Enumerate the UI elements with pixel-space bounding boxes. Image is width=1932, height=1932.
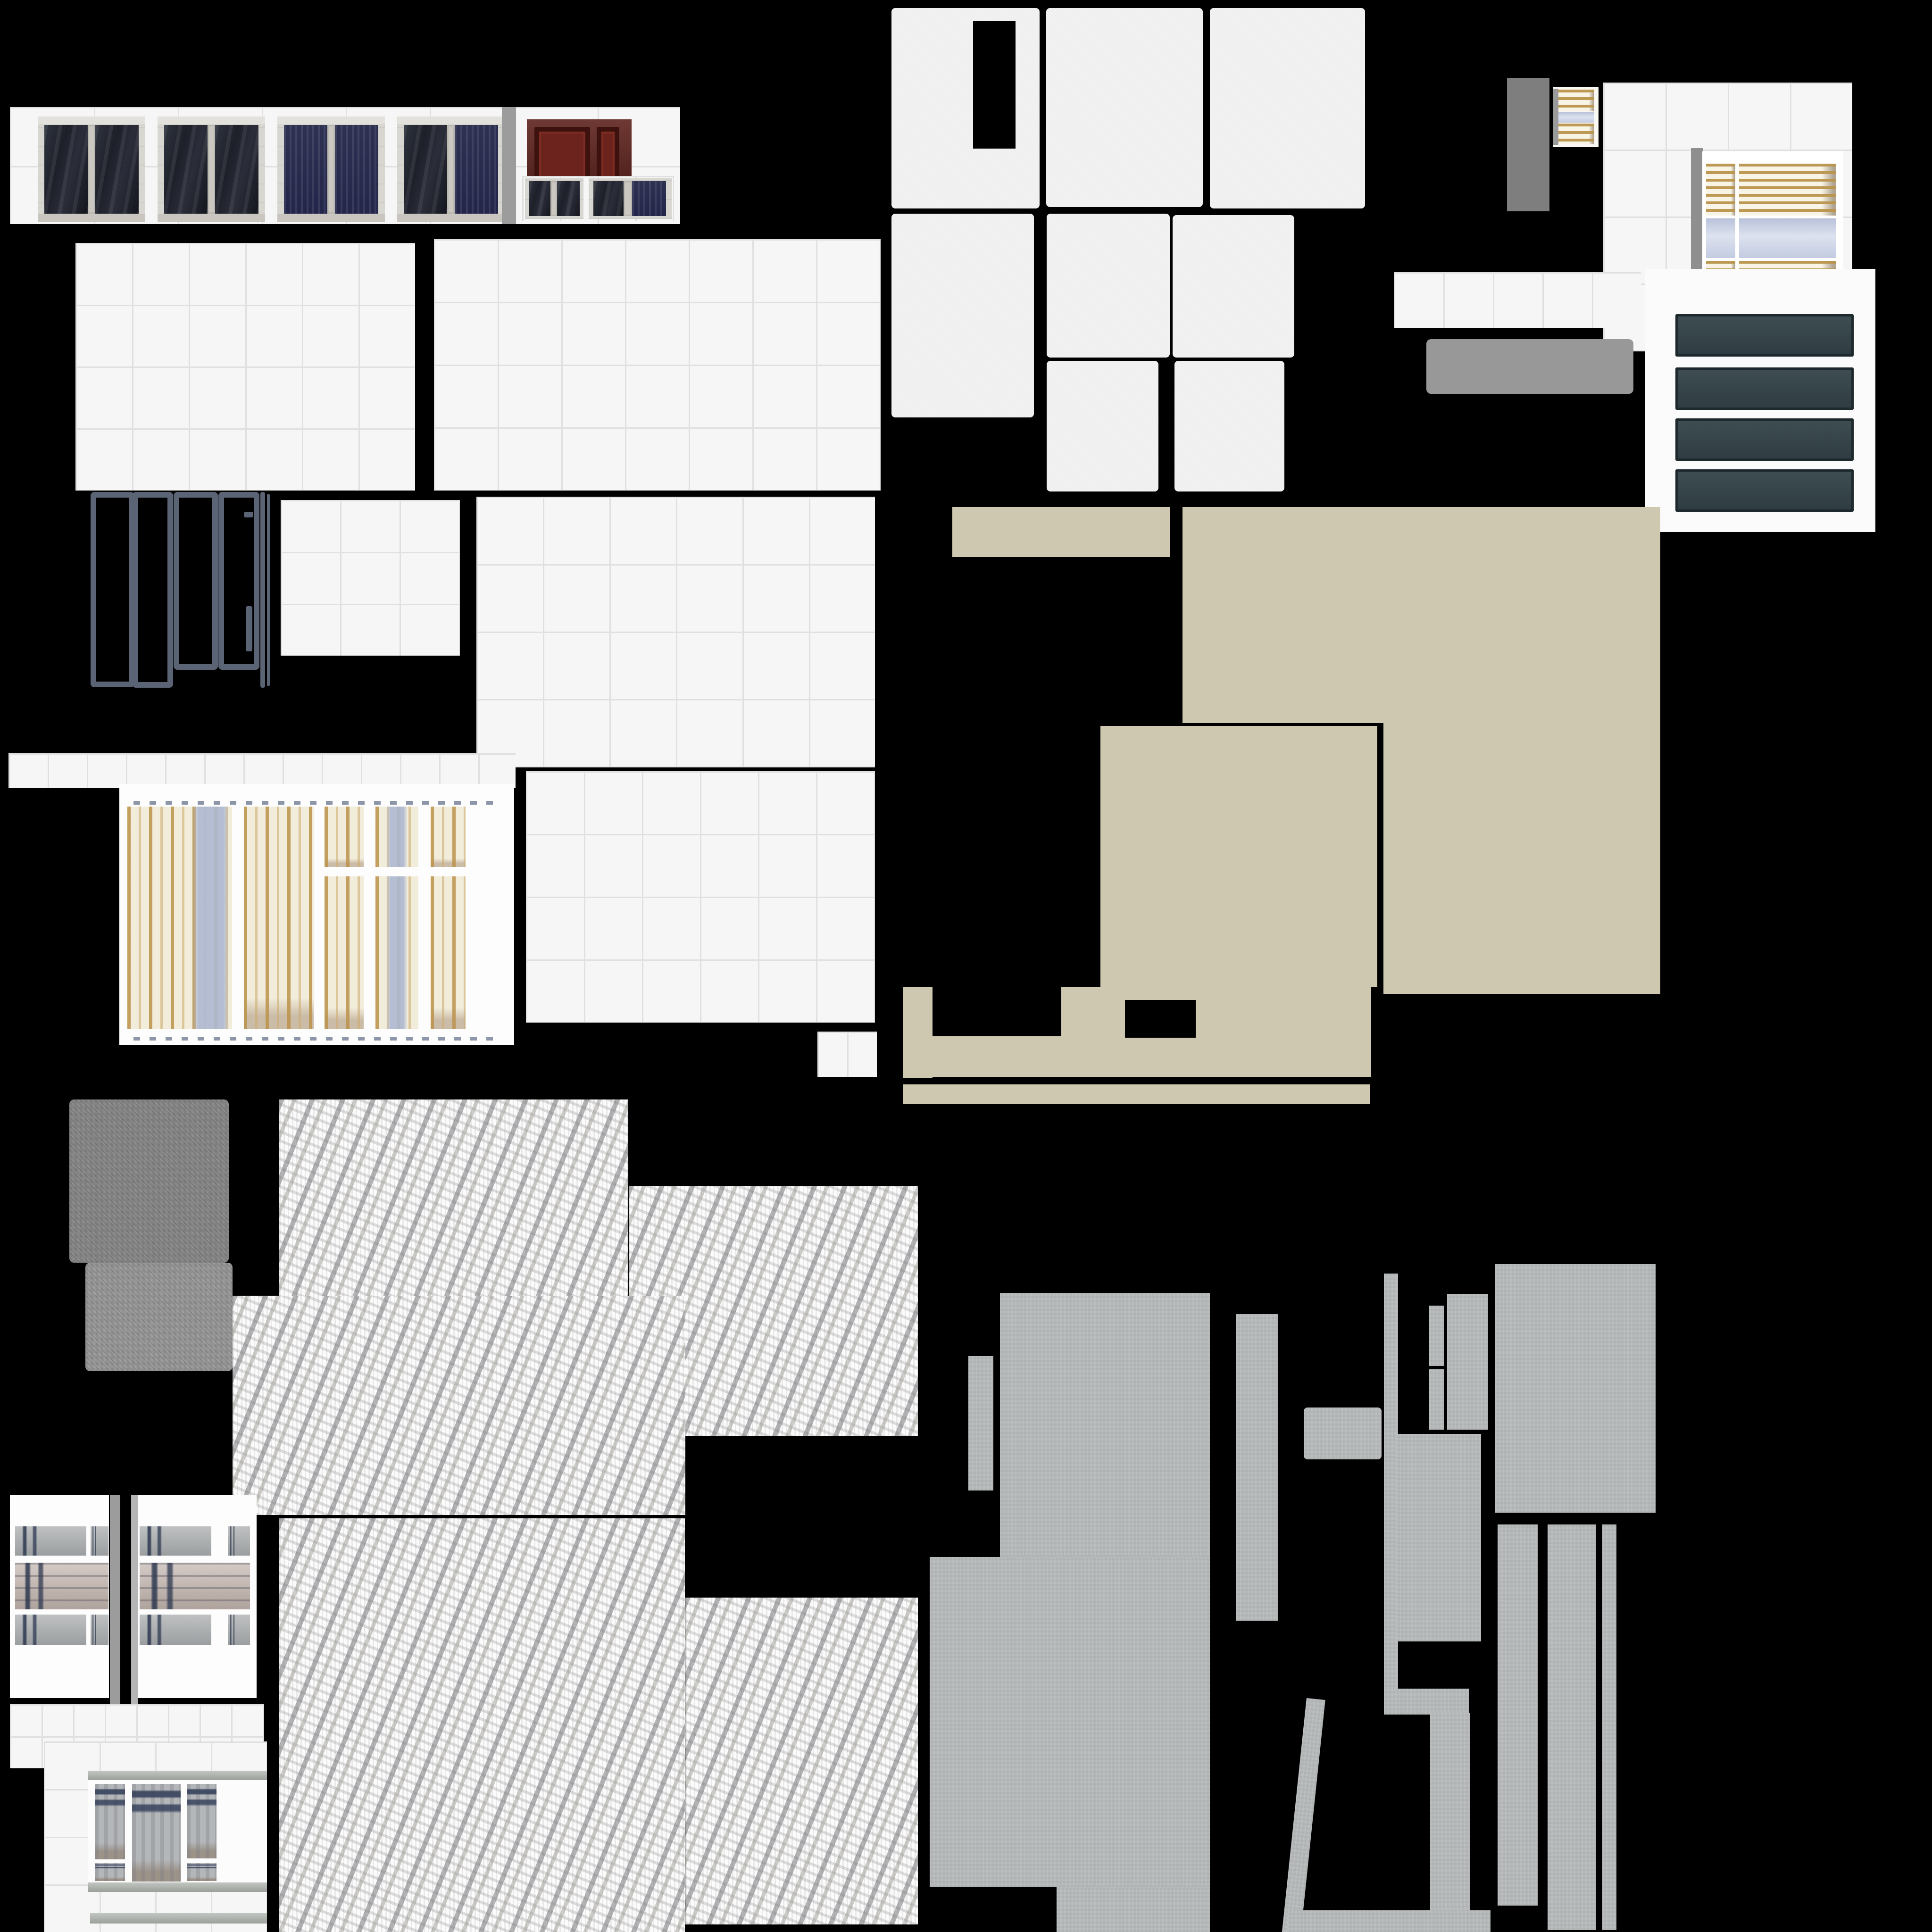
tr-gray-bar bbox=[1507, 78, 1549, 211]
tile-strip-long bbox=[8, 753, 516, 788]
glass-row3-side bbox=[91, 1615, 108, 1645]
window-lintel bbox=[38, 117, 145, 124]
br-slab-h bbox=[1396, 1434, 1481, 1641]
window-mullion bbox=[447, 125, 455, 214]
window-pane-left bbox=[529, 181, 550, 216]
mini-blinds-bottom bbox=[1558, 124, 1594, 144]
blinds-left-top bbox=[1706, 164, 1735, 216]
blinds-right-mid bbox=[1739, 218, 1836, 258]
window-unit-2 bbox=[158, 117, 265, 222]
tile-region-c bbox=[281, 500, 460, 656]
tile-region-d bbox=[476, 497, 875, 767]
window-pane-right bbox=[557, 181, 580, 216]
window-pane-left bbox=[44, 125, 88, 214]
tr-plank-strip bbox=[1394, 272, 1641, 328]
curtain-col2-bottom bbox=[375, 876, 418, 1029]
window-pane-right bbox=[455, 125, 498, 214]
teal-slat-2 bbox=[1675, 367, 1854, 410]
curtain-window-block bbox=[119, 784, 514, 1045]
mini-blinds-edge bbox=[1553, 89, 1558, 145]
mini-blinds-band bbox=[1558, 112, 1594, 123]
curtain-pane-wide-1 bbox=[127, 807, 232, 1029]
window-mullion bbox=[208, 125, 215, 214]
window-sill bbox=[38, 214, 145, 222]
curtain-col2-top bbox=[375, 807, 418, 867]
br-column-k bbox=[1602, 1524, 1616, 1930]
bl-bar-lower bbox=[90, 1913, 267, 1924]
curtain-col3-bottom bbox=[431, 876, 466, 1029]
br-strip-c bbox=[1236, 1314, 1278, 1621]
window-lintel bbox=[397, 117, 505, 124]
br-rect-g bbox=[1304, 1407, 1382, 1459]
br-vbar bbox=[968, 1356, 993, 1491]
window-sill bbox=[158, 214, 265, 222]
tan-thin-strip bbox=[903, 1084, 1370, 1104]
tile-region-e bbox=[526, 771, 875, 1023]
door-frame-outline-4 bbox=[218, 492, 259, 670]
white-box-1 bbox=[891, 8, 1040, 208]
glass-row2-wide bbox=[15, 1563, 108, 1609]
bl-post-2 bbox=[131, 1495, 138, 1704]
tr-mini-blinds bbox=[1553, 87, 1599, 147]
br-slab-tongue bbox=[1057, 1887, 1210, 1932]
br-slanted-strip bbox=[1281, 1698, 1325, 1932]
window-mullion bbox=[550, 181, 557, 216]
curtain-pane-3-low bbox=[187, 1863, 217, 1881]
window-sill bbox=[397, 214, 505, 222]
uv-slot bbox=[973, 21, 1016, 149]
frame-thin-bar-1 bbox=[260, 492, 265, 688]
window-sill bbox=[277, 214, 385, 222]
glass-row3-main bbox=[140, 1615, 211, 1645]
texture-atlas-canvas bbox=[0, 0, 1932, 1932]
bl-sill-bottom bbox=[88, 1882, 267, 1892]
white-box-4 bbox=[891, 214, 1034, 417]
tan-bar bbox=[952, 507, 1170, 557]
glass-row1-main bbox=[15, 1526, 86, 1556]
frame-knob bbox=[244, 512, 253, 517]
curtain-rail-bottom bbox=[133, 1037, 497, 1041]
blinds-left-mid bbox=[1706, 218, 1735, 258]
window-mullion bbox=[327, 125, 335, 214]
br-strip-under-h bbox=[1430, 1713, 1470, 1916]
pattern-piece-3 bbox=[233, 1296, 685, 1515]
tr-gray-rect bbox=[1426, 339, 1633, 394]
bl-post-1 bbox=[110, 1495, 120, 1704]
white-box-6 bbox=[1173, 215, 1294, 358]
bl-window-unit-left bbox=[10, 1495, 109, 1698]
curtain-pane-1 bbox=[95, 1784, 125, 1859]
white-box-8 bbox=[1174, 361, 1284, 491]
small-window-pair-1 bbox=[525, 178, 583, 219]
stone-texture-light bbox=[85, 1263, 233, 1371]
curtain-col1-top bbox=[325, 807, 364, 867]
window-pane-right bbox=[95, 125, 139, 214]
tan-slab-mid-left bbox=[1100, 726, 1377, 987]
tan-slab-mid-right bbox=[1383, 723, 1660, 994]
br-bar-f bbox=[1447, 1294, 1488, 1430]
glass-row1-main bbox=[140, 1526, 211, 1556]
br-bottom-bar-thin bbox=[1325, 1928, 1467, 1932]
door-frame-outline-1 bbox=[91, 492, 134, 687]
white-box-7 bbox=[1047, 361, 1158, 491]
tile-region-a bbox=[75, 243, 415, 491]
mini-blinds-top bbox=[1558, 90, 1594, 111]
glass-row3-main bbox=[15, 1615, 86, 1645]
br-slab-l bbox=[1495, 1264, 1656, 1513]
small-window-pair-2 bbox=[589, 178, 672, 219]
divider-bar bbox=[502, 107, 516, 224]
tan-bracket-hole bbox=[1125, 1000, 1196, 1038]
tan-slab-large bbox=[1183, 507, 1660, 723]
stone-texture-dark bbox=[69, 1099, 229, 1263]
br-lbar-foot bbox=[1384, 1689, 1469, 1715]
curtain-rail-top bbox=[133, 801, 497, 805]
window-pane-right bbox=[215, 125, 258, 214]
pattern-piece-5 bbox=[685, 1598, 918, 1924]
curtain-pane-wide-2 bbox=[244, 807, 314, 1029]
pattern-piece-1 bbox=[279, 1099, 628, 1298]
window-pane-left bbox=[593, 181, 624, 216]
window-pane-right bbox=[335, 125, 378, 214]
bl-sill-top bbox=[88, 1771, 267, 1780]
glass-row2-wide bbox=[140, 1563, 250, 1609]
bl-small-window bbox=[88, 1780, 267, 1882]
tan-bracket-right bbox=[1061, 987, 1371, 1077]
white-box-2 bbox=[1046, 8, 1203, 207]
window-unit-4 bbox=[397, 117, 505, 222]
br-small-pair-1 bbox=[1429, 1306, 1444, 1366]
window-mullion bbox=[88, 125, 95, 214]
window-pane-right bbox=[632, 181, 666, 216]
curtain-col1-bottom bbox=[325, 876, 364, 1029]
curtain-col3-top bbox=[431, 807, 466, 867]
br-small-pair-2 bbox=[1429, 1369, 1444, 1430]
window-mullion bbox=[624, 181, 632, 216]
white-box-3 bbox=[1210, 8, 1365, 208]
door-frame-outline-3 bbox=[174, 492, 218, 670]
teal-slat-1 bbox=[1675, 314, 1854, 357]
curtain-pane-2 bbox=[132, 1784, 181, 1882]
window-pane-left bbox=[404, 125, 447, 214]
window-lintel bbox=[158, 117, 265, 124]
bl-window-unit-right bbox=[138, 1495, 257, 1698]
glass-row1-side bbox=[91, 1526, 108, 1556]
white-box-5 bbox=[1047, 214, 1170, 358]
glass-row1-side bbox=[228, 1526, 250, 1556]
tile-small-square bbox=[817, 1032, 877, 1077]
window-unit-1 bbox=[38, 117, 145, 222]
door-frame-outline-2 bbox=[132, 492, 173, 688]
teal-slat-3 bbox=[1675, 418, 1854, 461]
glass-row3-side bbox=[228, 1615, 250, 1645]
window-lintel bbox=[277, 117, 385, 124]
br-column-j bbox=[1548, 1524, 1596, 1930]
frame-handle bbox=[246, 606, 252, 651]
curtain-pane-3 bbox=[187, 1784, 217, 1858]
blinds-right-top bbox=[1739, 164, 1836, 216]
window-unit-3 bbox=[277, 117, 385, 222]
br-slab-top bbox=[1000, 1293, 1210, 1557]
pattern-piece-4 bbox=[279, 1518, 685, 1932]
frame-thin-bar-2 bbox=[267, 494, 270, 686]
br-slab-mid bbox=[930, 1557, 1210, 1887]
window-pane-left bbox=[284, 125, 327, 214]
teal-slat-4 bbox=[1675, 469, 1854, 512]
br-column-i bbox=[1498, 1524, 1538, 1906]
tile-region-b bbox=[434, 239, 881, 491]
teal-shutter-panel bbox=[1645, 269, 1875, 532]
curtain-pane-1-low bbox=[95, 1863, 125, 1881]
window-pane-left bbox=[164, 125, 208, 214]
